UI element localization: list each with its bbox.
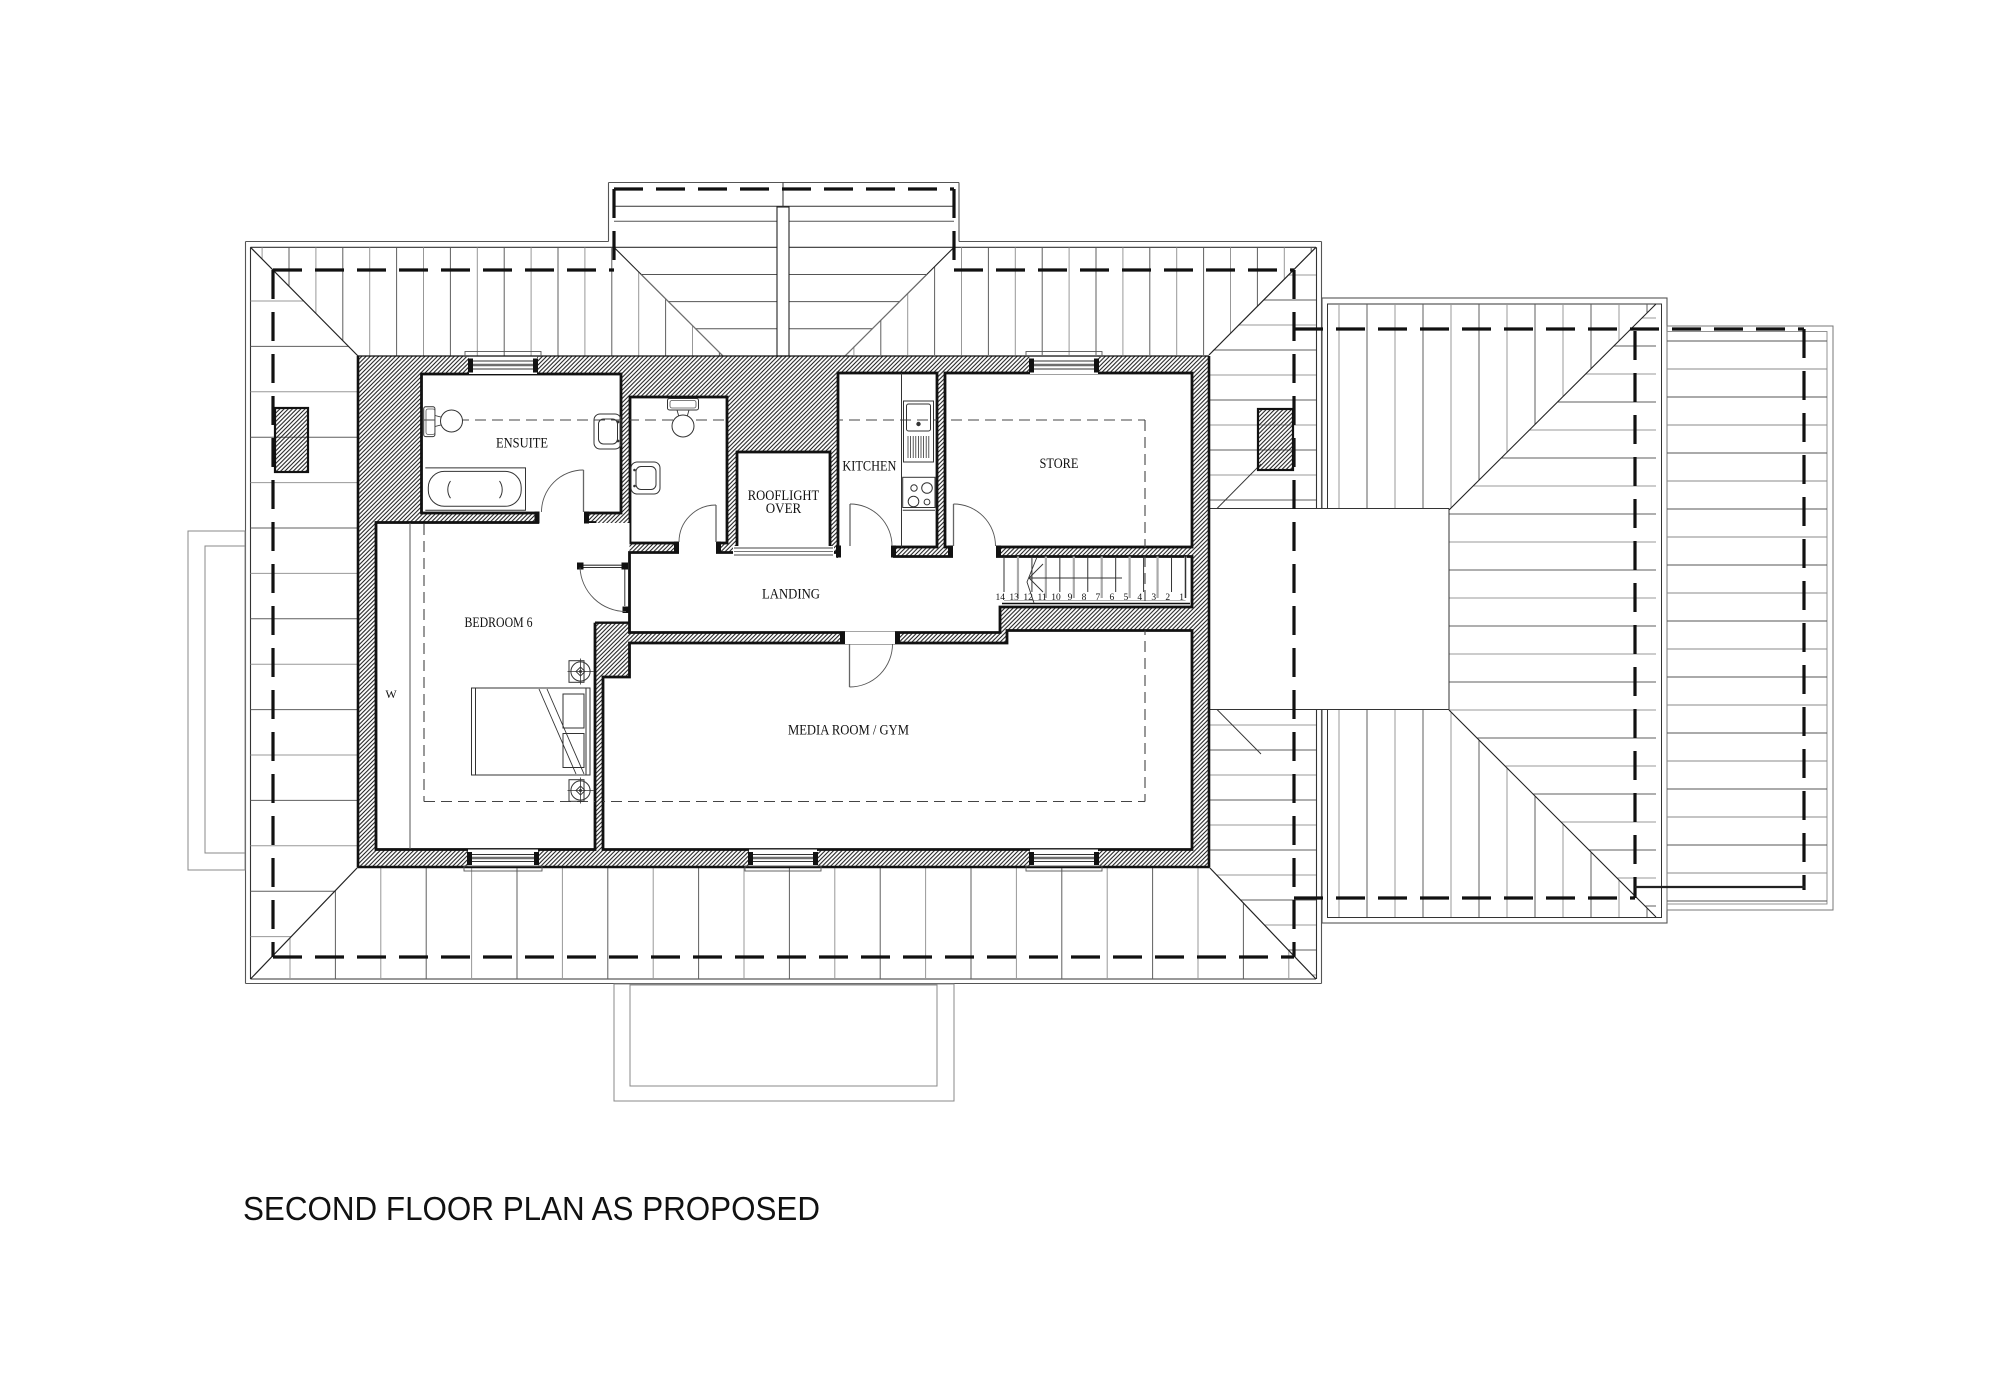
svg-text:KITCHEN: KITCHEN: [842, 459, 896, 475]
svg-text:OVER: OVER: [766, 501, 802, 517]
svg-text:6: 6: [1110, 593, 1115, 603]
svg-text:2: 2: [1165, 593, 1170, 603]
svg-text:3: 3: [1151, 593, 1156, 603]
svg-text:12: 12: [1023, 593, 1033, 603]
svg-text:14: 14: [995, 593, 1005, 603]
svg-text:ENSUITE: ENSUITE: [496, 436, 548, 452]
svg-text:11: 11: [1038, 593, 1047, 603]
svg-text:BEDROOM 6: BEDROOM 6: [465, 615, 533, 631]
svg-text:LANDING: LANDING: [762, 587, 820, 603]
svg-text:W: W: [385, 687, 397, 701]
svg-text:MEDIA ROOM / GYM: MEDIA ROOM / GYM: [788, 723, 909, 739]
svg-text:4: 4: [1137, 593, 1142, 603]
svg-text:SECOND FLOOR PLAN AS PROPOSED: SECOND FLOOR PLAN AS PROPOSED: [243, 1191, 820, 1228]
svg-text:13: 13: [1009, 593, 1019, 603]
svg-text:8: 8: [1082, 593, 1087, 603]
svg-text:5: 5: [1123, 593, 1128, 603]
svg-text:STORE: STORE: [1040, 456, 1079, 472]
svg-text:9: 9: [1068, 593, 1073, 603]
svg-text:10: 10: [1051, 593, 1061, 603]
svg-text:7: 7: [1096, 593, 1101, 603]
svg-text:1: 1: [1179, 593, 1184, 603]
